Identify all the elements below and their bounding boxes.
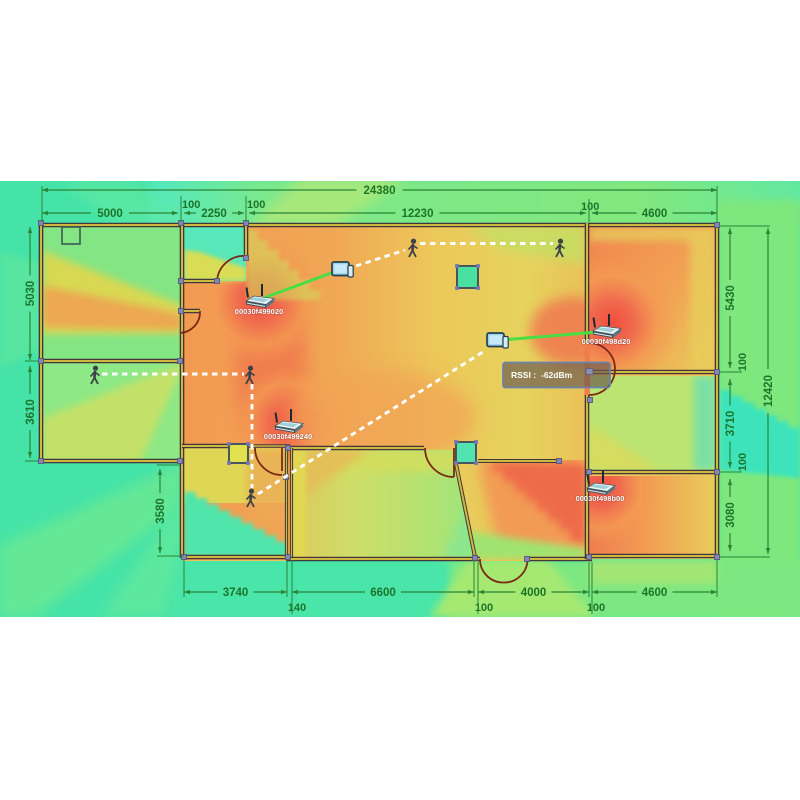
svg-text:100: 100 — [182, 199, 200, 211]
svg-text:RSSI :: RSSI : — [511, 370, 536, 380]
svg-text:5430: 5430 — [725, 285, 737, 311]
svg-text:2250: 2250 — [201, 208, 227, 220]
svg-text:3580: 3580 — [155, 498, 167, 524]
svg-text:100: 100 — [247, 199, 265, 211]
svg-text:12230: 12230 — [402, 208, 434, 220]
svg-text:3080: 3080 — [725, 502, 737, 528]
svg-text:5030: 5030 — [25, 281, 37, 307]
svg-text:140: 140 — [288, 602, 306, 614]
svg-text:00030f498d20: 00030f498d20 — [582, 337, 631, 346]
svg-text:100: 100 — [737, 453, 749, 471]
svg-text:00030f499020: 00030f499020 — [235, 307, 283, 316]
svg-text:4000: 4000 — [521, 587, 547, 599]
svg-text:4600: 4600 — [642, 587, 668, 599]
svg-text:3740: 3740 — [223, 587, 249, 599]
svg-text:100: 100 — [737, 353, 749, 371]
svg-text:00030f499240: 00030f499240 — [264, 432, 312, 441]
svg-text:4600: 4600 — [642, 208, 668, 220]
svg-text:6600: 6600 — [370, 587, 396, 599]
svg-text:12420: 12420 — [763, 375, 775, 407]
svg-text:3610: 3610 — [25, 399, 37, 425]
svg-text:-62dBm: -62dBm — [541, 370, 573, 380]
svg-text:5000: 5000 — [97, 208, 123, 220]
svg-text:24380: 24380 — [364, 185, 396, 197]
svg-text:00030f498b00: 00030f498b00 — [576, 494, 625, 503]
svg-text:100: 100 — [581, 201, 599, 213]
svg-text:3710: 3710 — [725, 411, 737, 437]
svg-text:100: 100 — [587, 602, 605, 614]
